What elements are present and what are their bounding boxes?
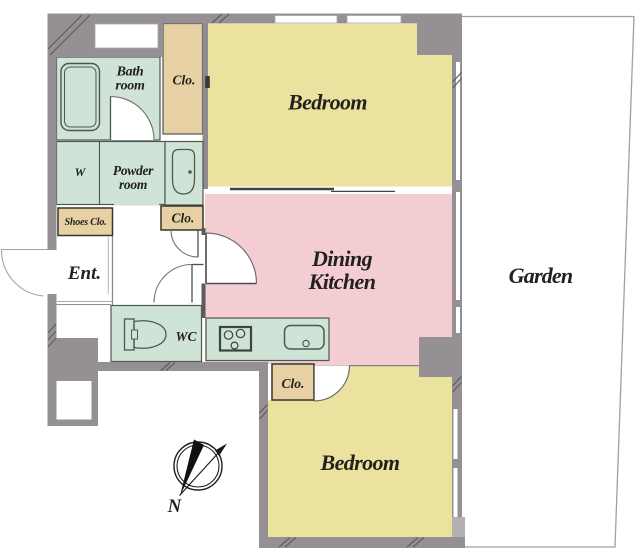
svg-text:Clo.: Clo. [282,376,305,391]
svg-text:Kitchen: Kitchen [308,269,376,294]
svg-text:room: room [119,177,147,192]
svg-text:Garden: Garden [509,263,573,288]
svg-text:W: W [75,165,87,179]
svg-text:Bedroom: Bedroom [287,90,367,115]
svg-text:Ent.: Ent. [67,263,101,284]
svg-text:room: room [115,79,145,94]
svg-text:N: N [167,496,183,517]
svg-text:Clo.: Clo. [172,211,195,226]
svg-text:Bath: Bath [116,65,144,80]
svg-text:Clo.: Clo. [173,73,196,88]
svg-text:Bedroom: Bedroom [320,450,400,475]
svg-text:Shoes Clo.: Shoes Clo. [65,217,107,228]
svg-text:Powder: Powder [113,163,154,178]
svg-text:Dining: Dining [311,246,373,271]
svg-text:WC: WC [175,329,197,344]
